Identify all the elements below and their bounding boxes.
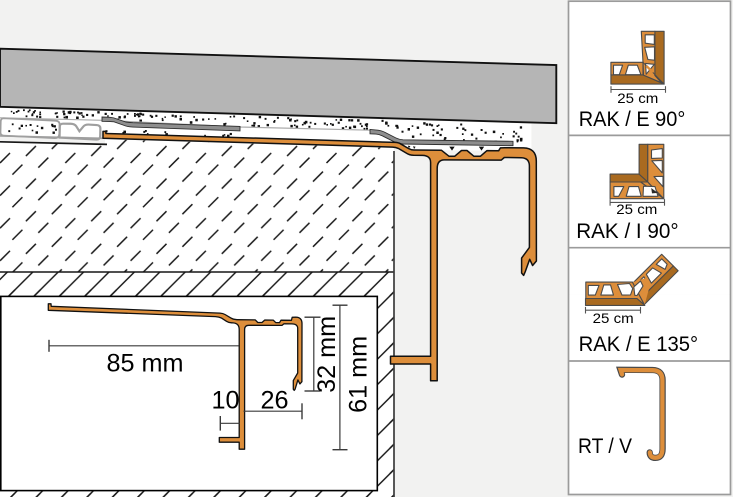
svg-text:RT / V: RT / V: [578, 435, 632, 458]
svg-text:RAK / E 135°: RAK / E 135°: [579, 333, 699, 356]
svg-text:25 cm: 25 cm: [617, 91, 658, 106]
svg-text:61 mm: 61 mm: [344, 336, 372, 413]
svg-text:25 cm: 25 cm: [593, 311, 634, 326]
svg-text:10: 10: [212, 386, 240, 414]
svg-text:25 cm: 25 cm: [616, 202, 657, 217]
svg-text:32 mm: 32 mm: [313, 316, 341, 393]
svg-text:26: 26: [261, 386, 289, 414]
svg-text:RAK / E 90°: RAK / E 90°: [579, 108, 686, 131]
svg-text:RAK / I 90°: RAK / I 90°: [576, 220, 679, 243]
svg-text:85 mm: 85 mm: [107, 349, 184, 377]
